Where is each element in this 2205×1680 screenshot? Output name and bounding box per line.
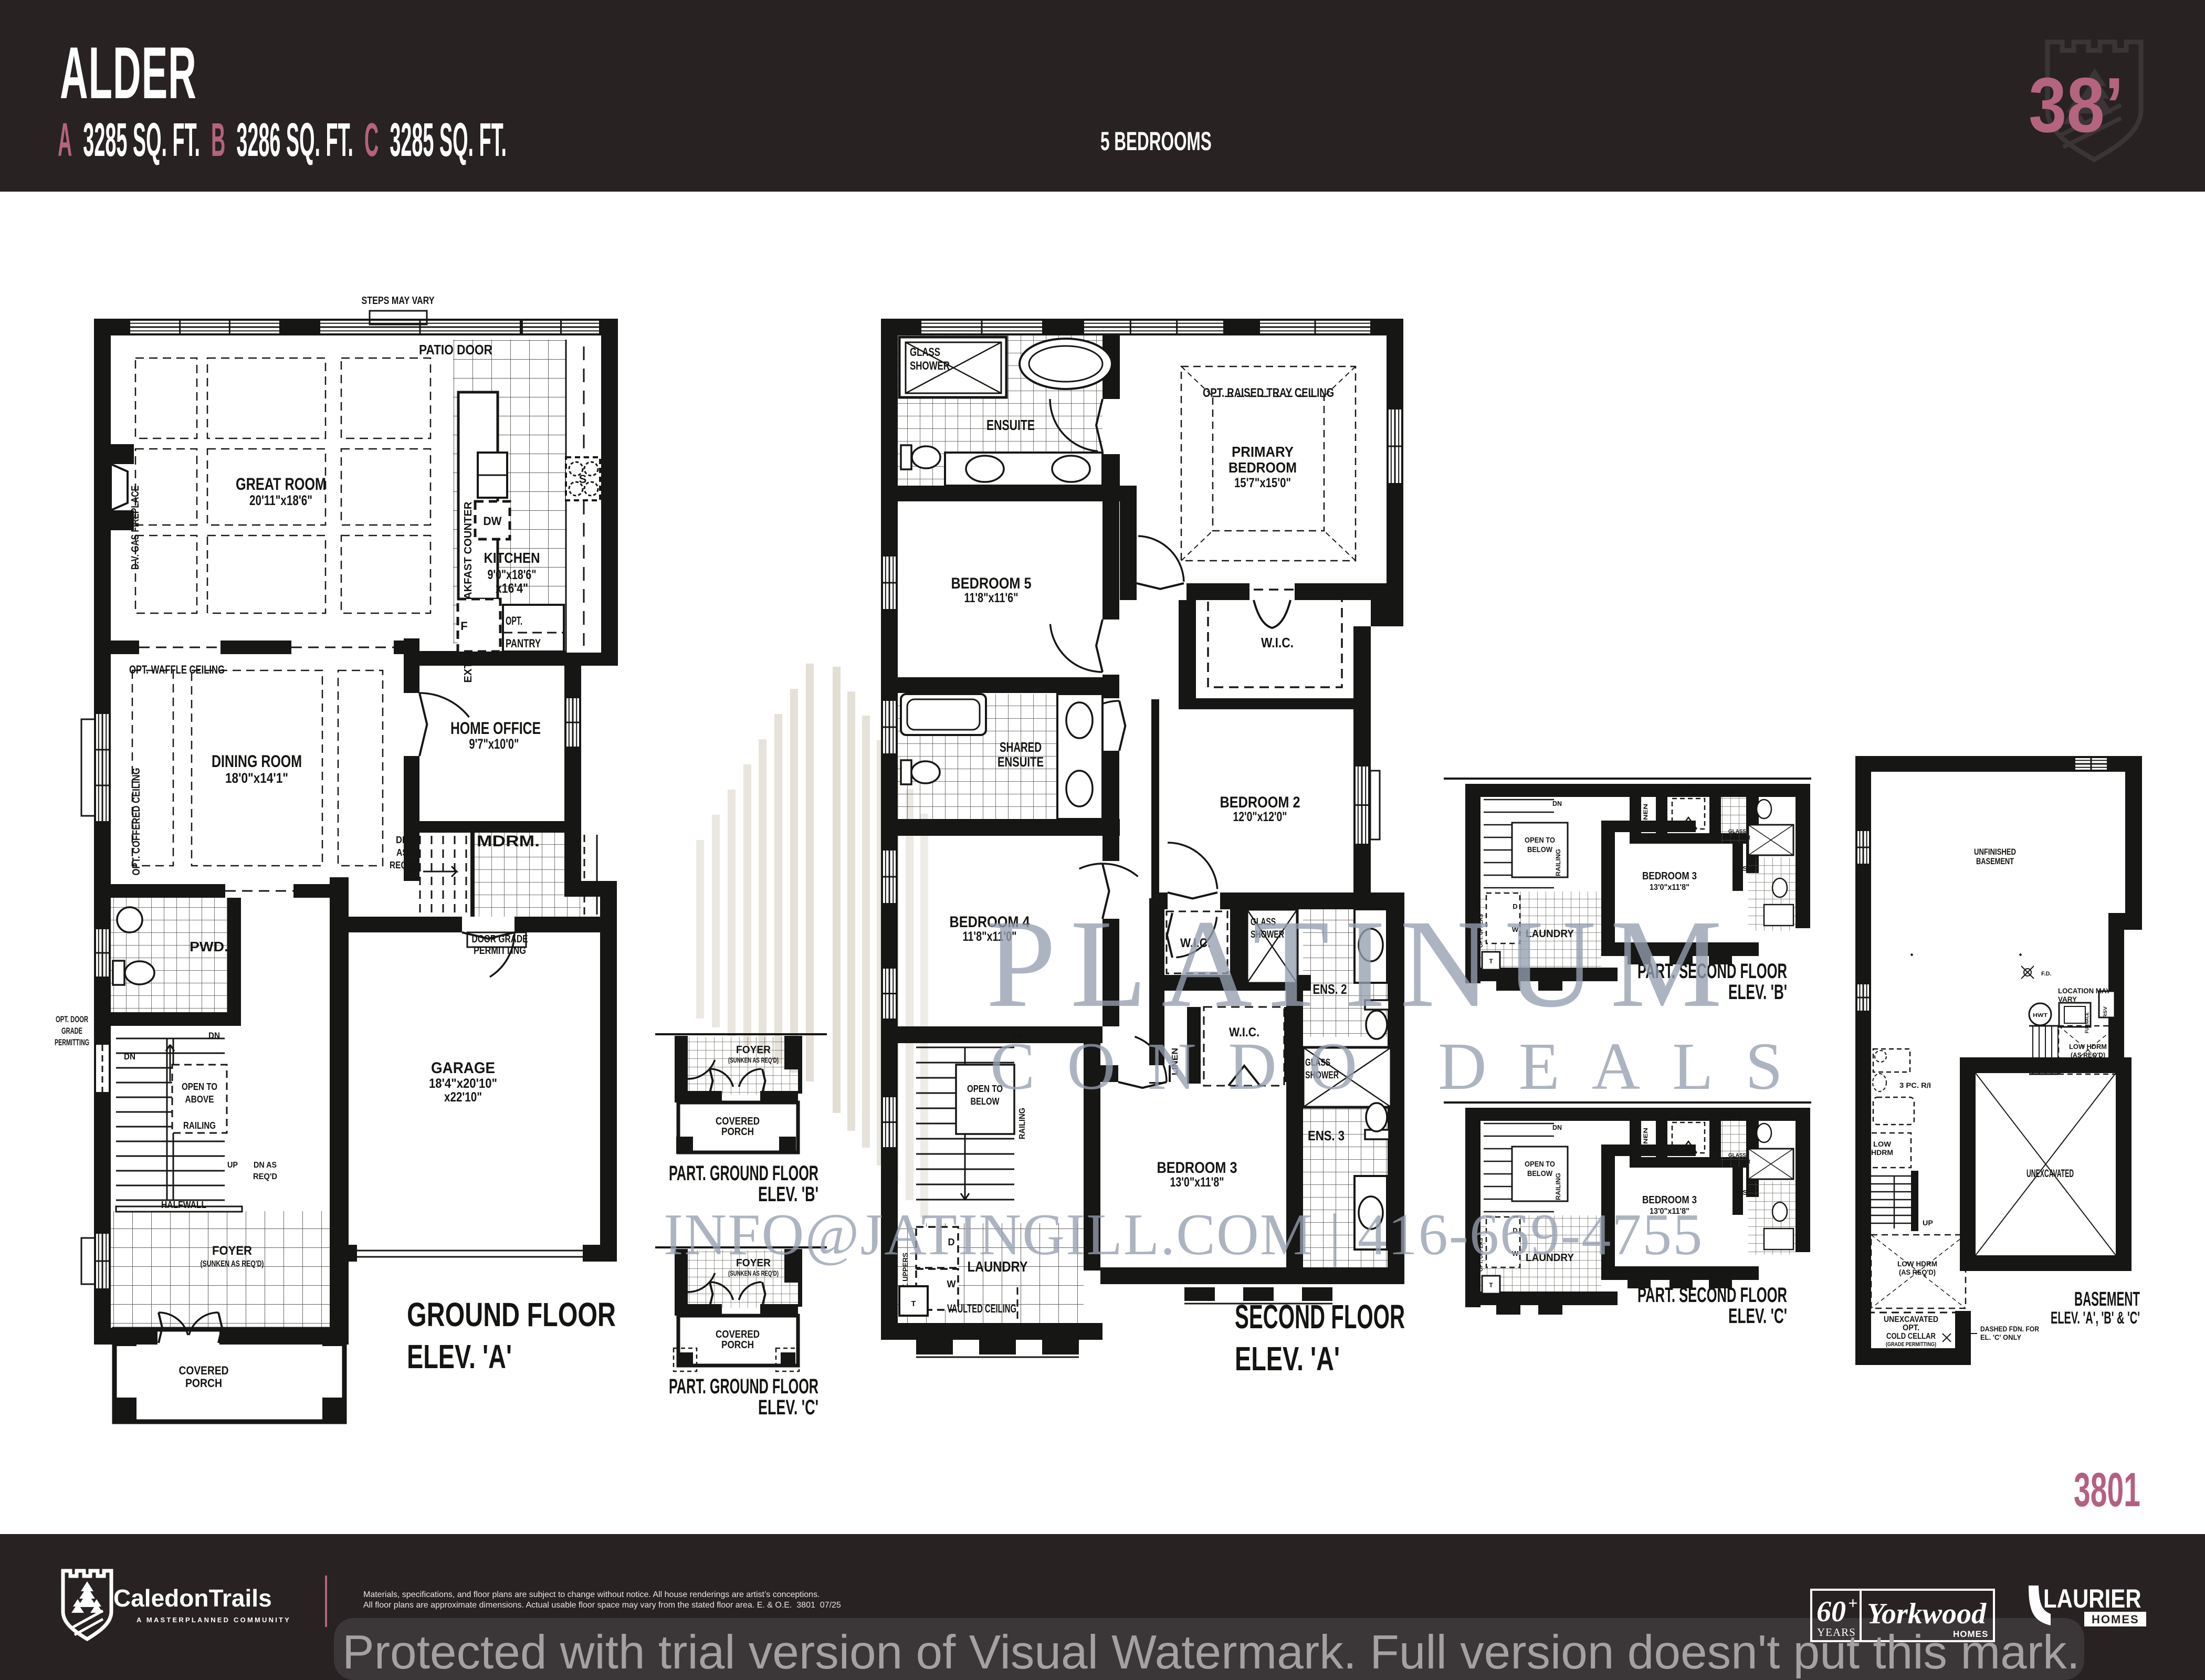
svg-text:W: W bbox=[947, 1279, 956, 1289]
svg-text:ELEV. 'A': ELEV. 'A' bbox=[407, 1338, 512, 1375]
svg-text:RAILING: RAILING bbox=[1018, 1108, 1027, 1139]
svg-text:DINING ROOM: DINING ROOM bbox=[212, 752, 302, 771]
svg-text:AS: AS bbox=[396, 847, 408, 858]
svg-text:PORCH: PORCH bbox=[721, 1126, 754, 1138]
svg-text:PORCH: PORCH bbox=[185, 1377, 222, 1390]
svg-text:HWT: HWT bbox=[2033, 1013, 2047, 1018]
svg-text:OPEN TO: OPEN TO bbox=[182, 1081, 217, 1092]
svg-text:SHOWER: SHOWER bbox=[910, 359, 950, 372]
svg-text:DN: DN bbox=[396, 835, 408, 845]
svg-text:(SUNKEN AS REQ'D): (SUNKEN AS REQ'D) bbox=[728, 1056, 779, 1064]
svg-text:GREAT ROOM: GREAT ROOM bbox=[236, 475, 326, 493]
svg-text:11'8"x11'6": 11'8"x11'6" bbox=[964, 591, 1018, 605]
svg-text:KITCHEN: KITCHEN bbox=[484, 550, 540, 566]
svg-text:SECOND FLOOR: SECOND FLOOR bbox=[1235, 1298, 1405, 1336]
svg-text:RSV: RSV bbox=[2103, 1006, 2108, 1018]
svg-text:FOYER: FOYER bbox=[212, 1244, 252, 1258]
svg-text:OPEN TO: OPEN TO bbox=[1525, 836, 1555, 845]
svg-text:STEPS MAY VARY: STEPS MAY VARY bbox=[362, 295, 435, 307]
svg-text:ENS. 3: ENS. 3 bbox=[1733, 1189, 1755, 1196]
svg-text:(AS REQ'D): (AS REQ'D) bbox=[1899, 1268, 1936, 1276]
svg-text:OPT. DOOR: OPT. DOOR bbox=[56, 1014, 88, 1024]
svg-text:RAILING: RAILING bbox=[1555, 849, 1562, 876]
svg-text:ELEV. 'C': ELEV. 'C' bbox=[1728, 1305, 1787, 1328]
svg-text:ENS. 3: ENS. 3 bbox=[1308, 1128, 1345, 1143]
svg-text:BEDROOM 5: BEDROOM 5 bbox=[951, 575, 1032, 592]
svg-text:BASEMENT: BASEMENT bbox=[2074, 1288, 2140, 1310]
svg-text:DN: DN bbox=[208, 1031, 220, 1041]
svg-text:VAULTED CEILING: VAULTED CEILING bbox=[947, 1302, 1016, 1315]
svg-text:LOW HDRM: LOW HDRM bbox=[1897, 1259, 1937, 1268]
svg-text:F.D.: F.D. bbox=[2041, 971, 2052, 977]
svg-text:ELEV. 'A': ELEV. 'A' bbox=[1235, 1340, 1340, 1378]
svg-text:DN: DN bbox=[1552, 800, 1562, 807]
svg-text:15'7"x15'0": 15'7"x15'0" bbox=[1234, 476, 1291, 490]
svg-text:OPEN TO: OPEN TO bbox=[1525, 1160, 1555, 1169]
svg-text:PRIMARY: PRIMARY bbox=[1232, 444, 1294, 460]
svg-text:UP: UP bbox=[227, 1161, 238, 1170]
svg-text:COVERED: COVERED bbox=[716, 1116, 760, 1127]
svg-text:LINEN: LINEN bbox=[1643, 804, 1649, 827]
svg-text:OPT. WAFFLE CEILING: OPT. WAFFLE CEILING bbox=[129, 663, 225, 676]
svg-text:SHOWER: SHOWER bbox=[1728, 835, 1750, 841]
svg-text:x16'4": x16'4" bbox=[496, 581, 528, 596]
svg-text:W.I.C.: W.I.C. bbox=[1261, 635, 1294, 650]
svg-text:DN: DN bbox=[1552, 1123, 1562, 1131]
svg-text:(AS REQ'D): (AS REQ'D) bbox=[2071, 1051, 2105, 1059]
svg-text:ENSUITE: ENSUITE bbox=[997, 754, 1044, 770]
svg-text:F: F bbox=[460, 619, 467, 633]
svg-text:3 PC. R/I: 3 PC. R/I bbox=[1899, 1081, 1931, 1089]
svg-text:BEDROOM 3: BEDROOM 3 bbox=[1157, 1159, 1237, 1177]
svg-text:LOW HDRM: LOW HDRM bbox=[2069, 1043, 2107, 1051]
svg-text:ENS. 3: ENS. 3 bbox=[1733, 865, 1755, 873]
svg-text:T: T bbox=[911, 1299, 916, 1308]
svg-text:60: 60 bbox=[1816, 1595, 1846, 1628]
svg-text:13'0"x11'8": 13'0"x11'8" bbox=[1170, 1175, 1224, 1190]
svg-text:12'0"x12'0": 12'0"x12'0" bbox=[1233, 810, 1287, 824]
svg-text:PATIO DOOR: PATIO DOOR bbox=[419, 342, 492, 358]
svg-text:CaledonTrails: CaledonTrails bbox=[113, 1584, 272, 1612]
svg-text:A MASTERPLANNED COMMUNITY: A MASTERPLANNED COMMUNITY bbox=[136, 1616, 291, 1624]
svg-text:ABOVE: ABOVE bbox=[185, 1094, 214, 1105]
svg-text:(GRADE PERMITTING): (GRADE PERMITTING) bbox=[1886, 1341, 1936, 1348]
svg-text:HALFWALL: HALFWALL bbox=[161, 1200, 206, 1210]
svg-text:EL. 'C' ONLY: EL. 'C' ONLY bbox=[1980, 1333, 2022, 1341]
svg-text:GLASS: GLASS bbox=[1728, 828, 1746, 835]
svg-text:S: S bbox=[579, 472, 587, 486]
svg-text:x22'10": x22'10" bbox=[444, 1090, 482, 1105]
svg-text:ENS. 2: ENS. 2 bbox=[1720, 787, 1742, 795]
svg-text:9'7"x10'0": 9'7"x10'0" bbox=[469, 736, 519, 752]
svg-text:PART. GROUND FLOOR: PART. GROUND FLOOR bbox=[669, 1375, 818, 1398]
svg-text:GRADE: GRADE bbox=[61, 1026, 82, 1036]
svg-text:EXTENDED BREAKFAST COUNTER: EXTENDED BREAKFAST COUNTER bbox=[463, 501, 474, 683]
svg-text:FURNACE: FURNACE bbox=[2084, 1012, 2089, 1033]
svg-text:LOCATION MAY: LOCATION MAY bbox=[2058, 986, 2111, 995]
svg-text:GLASS: GLASS bbox=[910, 345, 940, 359]
svg-text:PWD.: PWD. bbox=[190, 939, 228, 954]
svg-text:18'0"x14'1": 18'0"x14'1" bbox=[225, 770, 288, 786]
svg-text:PERMITTING: PERMITTING bbox=[474, 945, 526, 957]
svg-text:DOOR GRADE: DOOR GRADE bbox=[472, 933, 528, 945]
svg-text:DN: DN bbox=[124, 1052, 135, 1062]
svg-text:GROUND FLOOR: GROUND FLOOR bbox=[407, 1296, 616, 1333]
svg-text:HDRM: HDRM bbox=[1871, 1148, 1893, 1157]
svg-text:PART. SECOND FLOOR: PART. SECOND FLOOR bbox=[1637, 1284, 1787, 1307]
svg-text:BEDROOM 2: BEDROOM 2 bbox=[1220, 794, 1300, 811]
svg-text:PART. GROUND FLOOR: PART. GROUND FLOOR bbox=[669, 1162, 818, 1185]
svg-text:LINEN: LINEN bbox=[1643, 1128, 1649, 1151]
svg-text:BELOW: BELOW bbox=[1527, 845, 1553, 854]
svg-text:(SUNKEN AS REQ'D): (SUNKEN AS REQ'D) bbox=[728, 1269, 779, 1277]
svg-text:UNEXCAVATED: UNEXCAVATED bbox=[2026, 1168, 2074, 1180]
svg-text:ELEV. 'A', 'B' & 'C': ELEV. 'A', 'B' & 'C' bbox=[2051, 1308, 2140, 1327]
svg-text:T: T bbox=[1489, 1282, 1493, 1289]
svg-text:BEDROOM 3: BEDROOM 3 bbox=[1642, 870, 1697, 882]
svg-text:HOMES: HOMES bbox=[2092, 1613, 2139, 1626]
svg-text:W.I.C.: W.I.C. bbox=[1676, 1112, 1701, 1121]
svg-text:BASEMENT: BASEMENT bbox=[1976, 856, 2014, 866]
svg-text:BELOW: BELOW bbox=[1527, 1169, 1553, 1178]
svg-text:9'0"x18'6": 9'0"x18'6" bbox=[488, 568, 537, 582]
svg-text:HOME OFFICE: HOME OFFICE bbox=[450, 719, 541, 738]
svg-text:RAILING: RAILING bbox=[183, 1120, 216, 1131]
svg-text:UNEXCAVATED: UNEXCAVATED bbox=[1884, 1315, 1938, 1324]
svg-text:W.I.C.: W.I.C. bbox=[1676, 789, 1701, 797]
svg-text:REQ'D: REQ'D bbox=[253, 1172, 277, 1181]
svg-text:20'11"x18'6": 20'11"x18'6" bbox=[249, 492, 312, 508]
svg-text:UP: UP bbox=[1923, 1219, 1933, 1227]
svg-text:OPT. RAISED TRAY CEILING: OPT. RAISED TRAY CEILING bbox=[1203, 386, 1334, 400]
svg-text:DASHED FDN. FOR: DASHED FDN. FOR bbox=[1980, 1325, 2039, 1333]
svg-text:PERMITTING: PERMITTING bbox=[55, 1037, 89, 1047]
svg-text:OPT. COFFERED CEILING: OPT. COFFERED CEILING bbox=[131, 768, 142, 876]
svg-text:+: + bbox=[1848, 1593, 1857, 1612]
svg-text:FOYER: FOYER bbox=[736, 1044, 771, 1056]
svg-text:COLD CELLAR: COLD CELLAR bbox=[1886, 1332, 1936, 1341]
svg-text:SHOWER: SHOWER bbox=[1728, 1159, 1750, 1165]
svg-text:(SUNKEN AS REQ'D): (SUNKEN AS REQ'D) bbox=[201, 1259, 264, 1268]
svg-text:UNFINISHED: UNFINISHED bbox=[1974, 847, 2016, 857]
svg-text:ENSUITE: ENSUITE bbox=[986, 417, 1035, 433]
svg-text:DW: DW bbox=[484, 514, 502, 528]
svg-text:GARAGE: GARAGE bbox=[431, 1059, 495, 1077]
svg-text:REQ'D: REQ'D bbox=[390, 860, 415, 870]
svg-text:ELEV. 'C': ELEV. 'C' bbox=[758, 1396, 818, 1419]
svg-text:COVERED: COVERED bbox=[179, 1364, 229, 1377]
svg-text:PANTRY: PANTRY bbox=[506, 637, 541, 650]
svg-text:BEDROOM: BEDROOM bbox=[1228, 459, 1297, 476]
svg-text:VARY: VARY bbox=[2058, 995, 2077, 1003]
svg-text:PORCH: PORCH bbox=[721, 1339, 754, 1351]
svg-text:LOW: LOW bbox=[1873, 1140, 1892, 1148]
svg-text:SHARED: SHARED bbox=[1000, 739, 1042, 755]
svg-text:OPT.: OPT. bbox=[1903, 1324, 1919, 1332]
svg-text:18'4"x20'10": 18'4"x20'10" bbox=[429, 1076, 497, 1091]
svg-text:ELEV. 'B': ELEV. 'B' bbox=[1728, 981, 1787, 1004]
svg-text:ENS. 2: ENS. 2 bbox=[1720, 1111, 1742, 1119]
svg-text:GLASS: GLASS bbox=[1728, 1152, 1746, 1159]
svg-text:LAURIER: LAURIER bbox=[2043, 1584, 2141, 1613]
svg-text:RAILING: RAILING bbox=[1555, 1173, 1562, 1200]
svg-text:DN AS: DN AS bbox=[254, 1161, 277, 1170]
svg-text:OPT.: OPT. bbox=[506, 614, 522, 627]
svg-text:MDRM.: MDRM. bbox=[477, 833, 540, 850]
svg-text:COVERED: COVERED bbox=[716, 1329, 760, 1340]
